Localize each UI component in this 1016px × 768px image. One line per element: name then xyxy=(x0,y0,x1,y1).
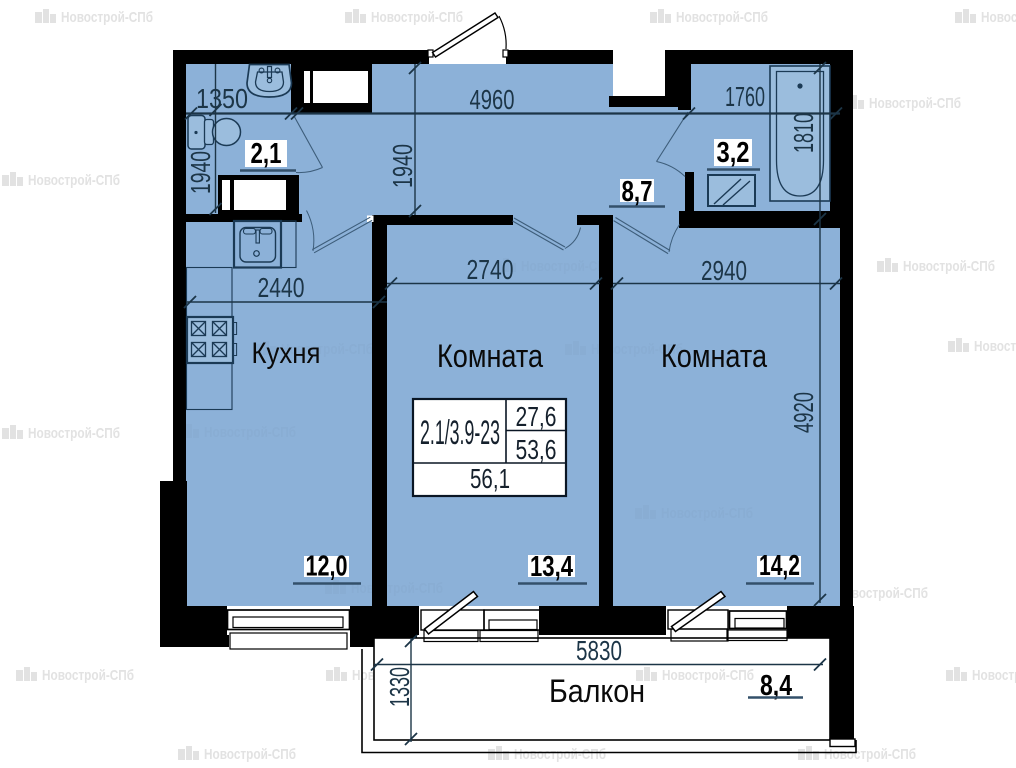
svg-text:53,6: 53,6 xyxy=(516,434,557,465)
svg-text:4960: 4960 xyxy=(470,84,515,115)
svg-text:2940: 2940 xyxy=(701,255,747,286)
svg-text:Балкон: Балкон xyxy=(549,673,645,709)
svg-text:2740: 2740 xyxy=(467,254,514,285)
svg-text:1940: 1940 xyxy=(185,151,216,194)
svg-text:2.1/3.9-23: 2.1/3.9-23 xyxy=(420,414,500,452)
svg-text:Комната: Комната xyxy=(661,338,767,374)
svg-text:Комната: Комната xyxy=(437,338,543,374)
svg-text:2,1: 2,1 xyxy=(251,138,282,170)
svg-text:5830: 5830 xyxy=(576,635,622,666)
svg-text:1760: 1760 xyxy=(725,81,765,112)
svg-text:1330: 1330 xyxy=(384,667,415,707)
svg-text:1810: 1810 xyxy=(788,113,819,153)
svg-text:1940: 1940 xyxy=(387,144,418,188)
svg-text:Кухня: Кухня xyxy=(252,337,321,370)
svg-text:3,2: 3,2 xyxy=(717,137,750,169)
svg-text:8,7: 8,7 xyxy=(622,176,653,208)
svg-text:14,2: 14,2 xyxy=(759,550,800,582)
svg-text:4920: 4920 xyxy=(788,392,819,433)
svg-text:27,6: 27,6 xyxy=(516,401,557,432)
svg-text:2440: 2440 xyxy=(258,272,305,303)
svg-text:12,0: 12,0 xyxy=(306,551,348,583)
svg-text:13,4: 13,4 xyxy=(530,551,573,583)
svg-text:56,1: 56,1 xyxy=(470,463,510,494)
svg-text:1350: 1350 xyxy=(196,83,248,114)
